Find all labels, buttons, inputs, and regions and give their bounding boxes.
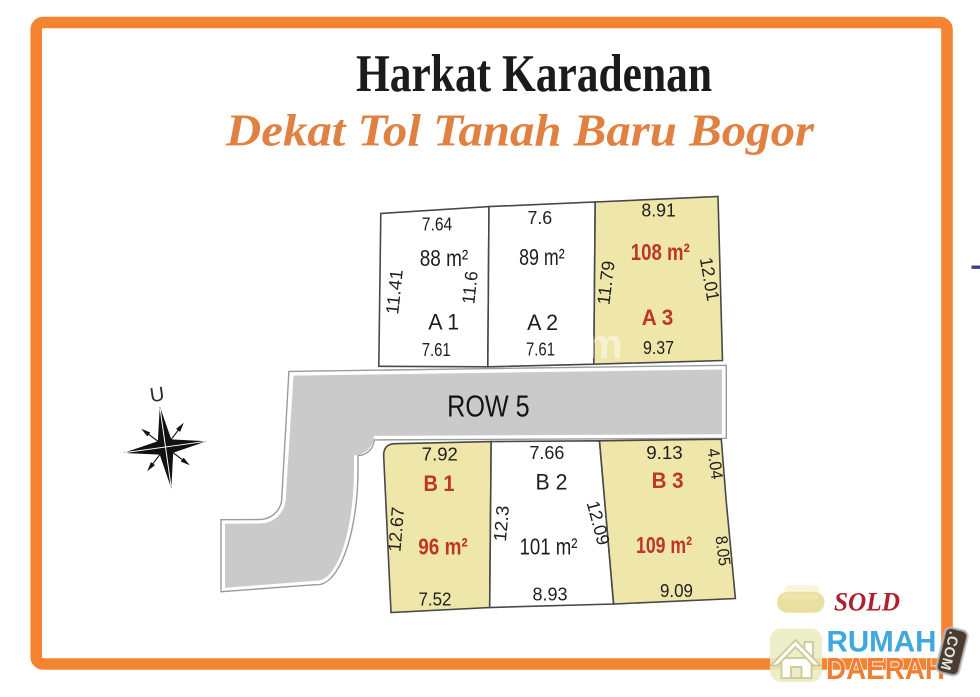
svg-text:B 3: B 3 bbox=[652, 468, 684, 493]
svg-text:U: U bbox=[149, 383, 166, 407]
svg-text:89 m²: 89 m² bbox=[519, 244, 565, 270]
svg-text:88 m²: 88 m² bbox=[420, 245, 469, 271]
svg-text:7.61: 7.61 bbox=[422, 340, 451, 360]
svg-text:8.91: 8.91 bbox=[641, 201, 676, 221]
svg-text:7.66: 7.66 bbox=[529, 443, 564, 463]
svg-text:Harkat Karadenan: Harkat Karadenan bbox=[356, 45, 712, 103]
svg-text:9.37: 9.37 bbox=[643, 338, 674, 358]
svg-text:108 m²: 108 m² bbox=[631, 239, 690, 265]
svg-text:7.61: 7.61 bbox=[526, 340, 555, 360]
svg-text:12.67: 12.67 bbox=[384, 506, 408, 553]
svg-text:109 m²: 109 m² bbox=[636, 532, 692, 558]
svg-text:A 2: A 2 bbox=[527, 310, 558, 335]
svg-text:7.6: 7.6 bbox=[527, 208, 552, 228]
svg-text:A 1: A 1 bbox=[428, 310, 459, 335]
svg-text:B 2: B 2 bbox=[536, 470, 568, 495]
svg-text:9.13: 9.13 bbox=[646, 443, 683, 463]
svg-text:7.52: 7.52 bbox=[419, 590, 452, 610]
svg-text:SOLD: SOLD bbox=[834, 587, 900, 617]
svg-text:8.93: 8.93 bbox=[533, 585, 568, 605]
svg-text:7.64: 7.64 bbox=[422, 214, 453, 234]
svg-text:ROW 5: ROW 5 bbox=[447, 389, 530, 424]
svg-text:101 m²: 101 m² bbox=[520, 534, 578, 560]
svg-text:A 3: A 3 bbox=[642, 305, 674, 330]
svg-text:DAERAH: DAERAH bbox=[826, 651, 945, 686]
svg-text:11.6: 11.6 bbox=[458, 270, 481, 305]
svg-text:8.05: 8.05 bbox=[712, 535, 735, 567]
svg-text:B 1: B 1 bbox=[424, 471, 455, 496]
svg-text:Dekat Tol Tanah Baru Bogor: Dekat Tol Tanah Baru Bogor bbox=[225, 105, 815, 156]
svg-text:12.3: 12.3 bbox=[490, 505, 513, 543]
svg-text:96 m²: 96 m² bbox=[418, 534, 468, 560]
svg-text:m: m bbox=[585, 320, 622, 367]
svg-text:7.92: 7.92 bbox=[422, 445, 458, 465]
svg-text:9.09: 9.09 bbox=[660, 581, 693, 601]
